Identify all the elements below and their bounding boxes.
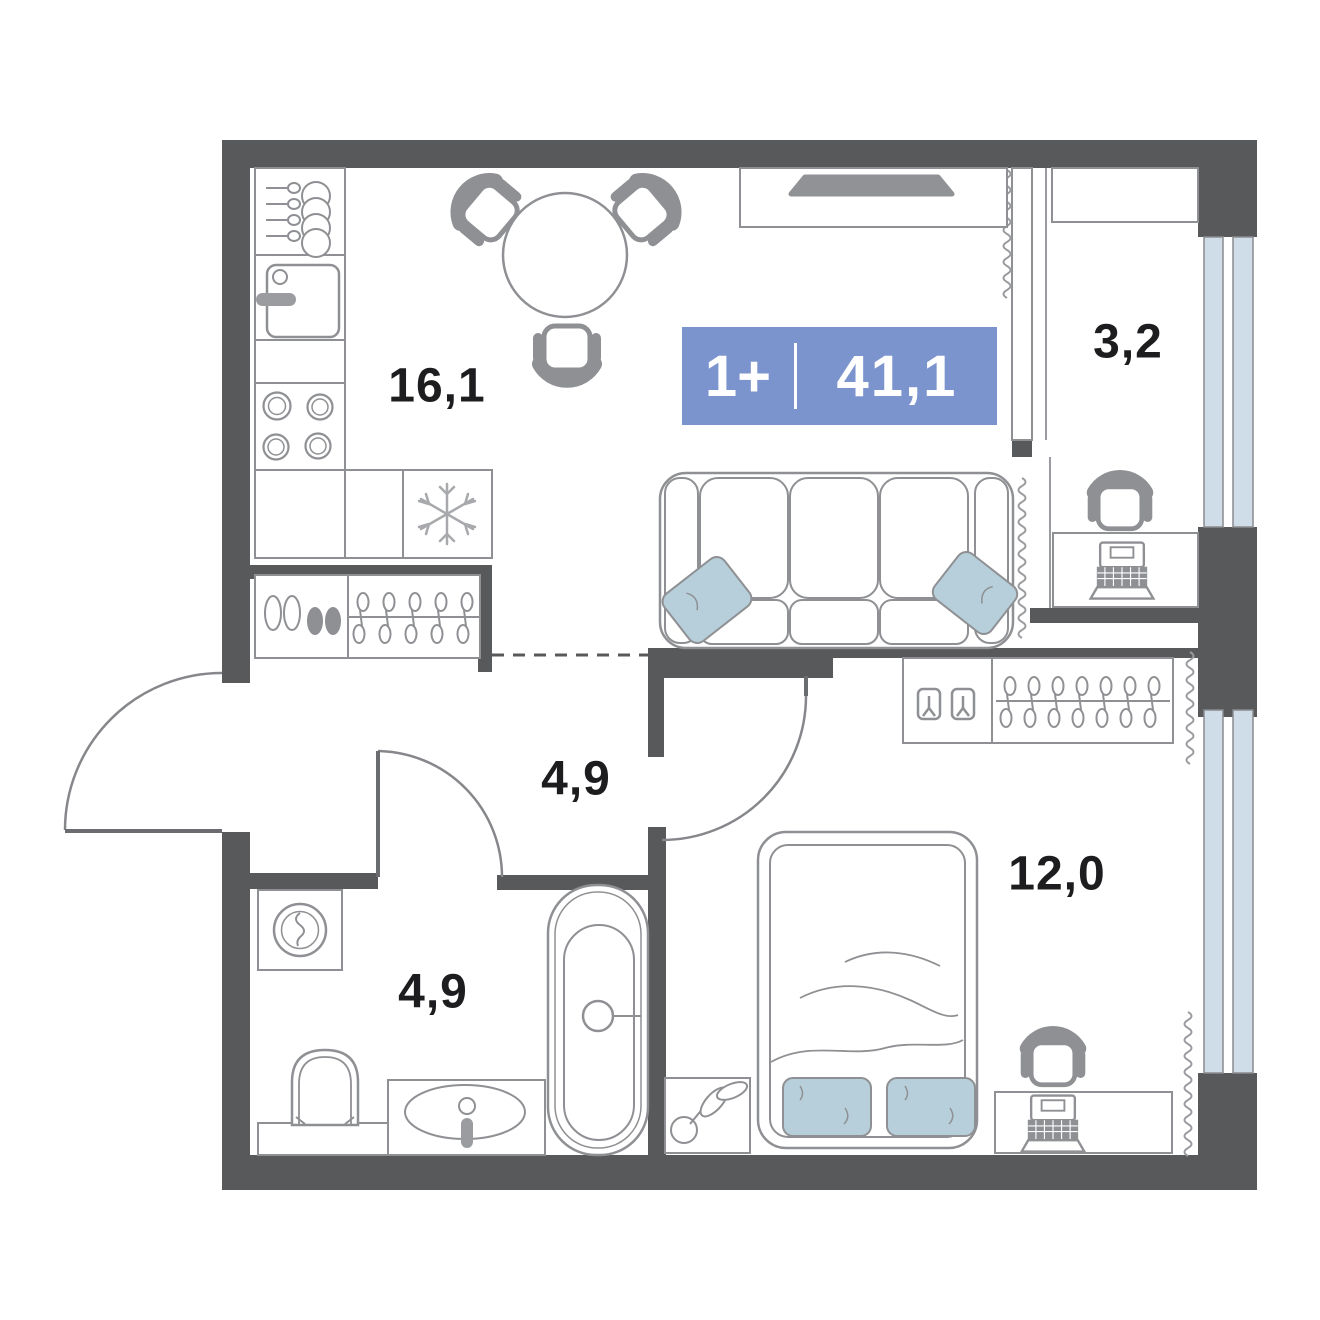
area-badge: 1+ 41,1 — [682, 327, 997, 425]
tv-console — [740, 168, 1007, 227]
rooms-count-label: 1+ — [682, 343, 794, 410]
bed-pillow — [783, 1078, 871, 1136]
wall-right-top — [1198, 140, 1257, 237]
wall-loggia-partition-stub — [1012, 440, 1032, 457]
entry-door — [65, 673, 222, 831]
laptop-icon — [1022, 1096, 1085, 1152]
wall-right-bottom — [1198, 1073, 1257, 1190]
hallway-closet — [255, 575, 480, 658]
loggia-glass-partition — [1012, 168, 1050, 608]
bedroom-desk-set — [995, 1034, 1172, 1153]
wall-bathroom-top-right — [497, 875, 650, 890]
washing-machine-icon — [258, 890, 342, 970]
bathtub-icon — [548, 885, 648, 1155]
floorplan-canvas: 1+ 41,1 16,1 3,2 4,9 4,9 12,0 — [0, 0, 1320, 1320]
glass-partition-frame — [1012, 168, 1032, 440]
wall-loggia-bottom — [1030, 608, 1198, 623]
dining-table — [503, 193, 627, 317]
squiggle-living-bottom — [1019, 478, 1026, 638]
bedroom-wardrobe — [903, 658, 1173, 743]
double-bed — [758, 832, 977, 1148]
wall-top — [222, 140, 1257, 168]
wall-living-bedroom-thin — [833, 648, 1198, 658]
bedroom-window-outer-pane — [1233, 710, 1253, 1073]
wall-right-middle — [1198, 527, 1257, 717]
squiggle-bedroom-bottom — [1185, 1012, 1192, 1156]
floorplan-drawing — [0, 0, 1320, 1320]
laptop-icon — [1091, 543, 1154, 599]
wall-bathroom-bedroom — [648, 827, 666, 1155]
shoe-filled-icon — [326, 608, 340, 634]
squiggle-bedroom-top — [1187, 652, 1194, 764]
loggia-furniture — [1052, 168, 1198, 607]
bedroom-desk — [995, 1092, 1172, 1153]
sink-faucet — [256, 293, 296, 306]
bedroom-door — [662, 676, 806, 840]
bed-pillow — [887, 1078, 975, 1136]
loggia-shelf — [1052, 168, 1198, 222]
total-area-label: 41,1 — [797, 343, 997, 410]
kitchen-counter-bottom-row — [345, 470, 492, 558]
kitchen-sink-icon — [256, 265, 339, 337]
vanity-sink-icon — [388, 1080, 545, 1155]
tv-icon — [791, 177, 952, 194]
toilet-icon — [292, 1050, 358, 1125]
plant-icon — [665, 1078, 750, 1153]
kitchen-counter-column — [255, 168, 345, 558]
bedroom-window-inner-pane — [1204, 710, 1223, 1073]
bathroom-shelf — [258, 1123, 390, 1155]
room-label-bedroom: 12,0 — [1008, 847, 1105, 902]
room-label-kitchen-living: 16,1 — [388, 359, 485, 414]
bathroom-door-swing-arc — [378, 751, 502, 877]
sofa — [659, 473, 1022, 648]
sofa-seat-front — [790, 600, 878, 644]
room-label-bathroom: 4,9 — [398, 965, 468, 1020]
bathtub-drain — [583, 1001, 613, 1031]
wall-bathroom-top-left — [250, 873, 378, 889]
wall-left-upper — [222, 140, 250, 683]
wall-left-lower — [222, 832, 250, 1190]
dining-chair — [538, 326, 596, 380]
loggia-window-outer-pane — [1233, 237, 1253, 527]
vanity-faucet — [461, 1118, 473, 1148]
room-label-hallway: 4,9 — [541, 752, 611, 807]
wall-bottom — [222, 1155, 1257, 1190]
room-label-loggia: 3,2 — [1093, 315, 1163, 370]
wall-living-bedroom-thick — [648, 648, 833, 678]
sofa-cushion — [790, 478, 878, 598]
bathroom-door — [378, 751, 502, 877]
entry-door-swing-arc — [65, 673, 222, 830]
desk-chair — [1092, 478, 1147, 529]
desk-chair — [1025, 1034, 1080, 1085]
wall-hall-bedroom-upper — [648, 648, 664, 757]
bedroom-door-swing-arc — [662, 696, 806, 840]
shoe-filled-icon — [308, 608, 322, 634]
dining-set — [447, 170, 685, 380]
loggia-window-inner-pane — [1204, 237, 1223, 527]
